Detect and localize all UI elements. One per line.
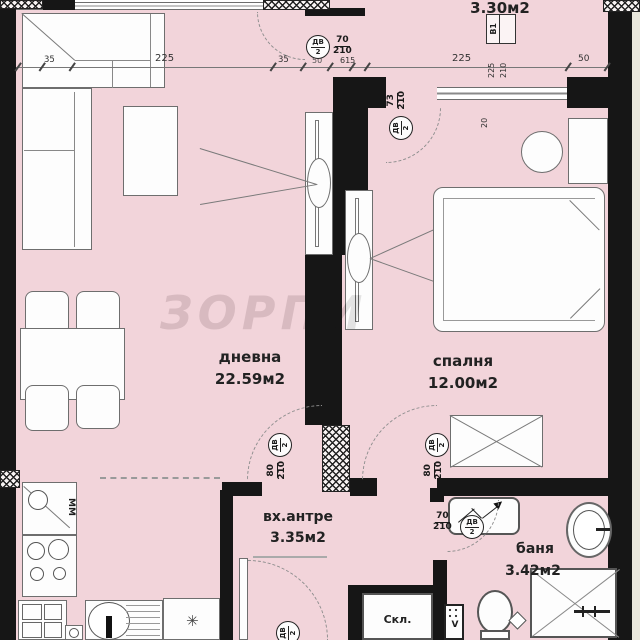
bedroom-window	[437, 87, 567, 100]
bedroom-radiator-lens	[347, 233, 371, 283]
door-size: 80 210	[267, 461, 288, 480]
wall-bed-bottom-a	[350, 478, 377, 496]
door-marker-num: 2	[316, 48, 321, 56]
door-marker-code: ДВ	[465, 519, 479, 528]
wall-mid-thin	[333, 190, 345, 255]
bath-name-label: баня	[495, 541, 575, 557]
door-size-height: 210	[278, 461, 288, 480]
door-size-height: 210	[433, 523, 452, 533]
dim-50b: 50	[578, 54, 589, 64]
door-marker: ДВ 2	[460, 515, 484, 539]
dim-35a: 35	[44, 55, 55, 65]
hatch-column	[322, 425, 350, 492]
door-marker-num: 2	[470, 528, 475, 536]
door-marker-num: 2	[438, 443, 446, 448]
hatch-top-mid	[263, 0, 330, 10]
shower-faucet-tick	[582, 606, 584, 617]
burner	[30, 567, 44, 581]
toilet-bowl	[477, 590, 513, 634]
living-name-label: дневна	[190, 349, 310, 366]
hall-line	[253, 556, 327, 558]
chair	[25, 385, 69, 431]
hall-name-label: вх.антре	[243, 509, 353, 525]
balcony-area-label: 3.30м2	[445, 0, 555, 17]
dim-615: 615	[340, 56, 355, 65]
sofa-horizontal	[22, 13, 165, 88]
cabinet-square	[44, 622, 62, 638]
window-marker-cell: В1	[487, 15, 500, 43]
bed-inner-line	[443, 198, 595, 199]
door-marker-num: 2	[402, 126, 410, 131]
hatch-bottom-left	[0, 470, 20, 488]
wall-right	[608, 12, 632, 640]
burner	[53, 567, 66, 580]
kitchen-mm-label: ММ	[60, 498, 76, 522]
door-marker-code: ДВ	[429, 438, 438, 452]
wall-mid-lower	[305, 255, 342, 425]
dim-35b: 35	[278, 55, 289, 65]
chair	[76, 385, 120, 429]
sofa-vertical	[22, 88, 92, 250]
door-marker-code: ДВ	[280, 626, 289, 640]
hatch-top-right	[603, 0, 640, 12]
wall-closet-left	[348, 585, 362, 640]
bedroom-area-label: 12.00м2	[408, 375, 518, 392]
watermark: ЗОРПИ	[160, 286, 470, 340]
closet-label: Скл.	[370, 614, 425, 627]
door-marker-num: 2	[289, 631, 297, 636]
sofa-armrest-line	[150, 14, 151, 87]
toilet-tank	[480, 630, 510, 640]
sofa-back-line	[74, 92, 75, 247]
door-marker: ДВ 2	[306, 35, 330, 59]
door-marker-code: ДВ	[272, 438, 281, 452]
small-unit-circle	[69, 628, 79, 638]
door-marker-num: 2	[281, 443, 289, 448]
nightstand	[568, 118, 608, 184]
bedside-round-table	[521, 131, 563, 173]
sink-tap	[106, 616, 112, 638]
sofa-division-line	[24, 150, 74, 151]
counter-star: ✳	[186, 612, 210, 636]
bath-area-label: 3.42м2	[488, 563, 578, 579]
cabinet-square	[22, 622, 42, 638]
dimension-line	[16, 67, 608, 68]
shower-faucet	[574, 610, 610, 613]
living-area-label: 22.59м2	[190, 371, 310, 388]
door-marker-code: ДВ	[393, 121, 402, 135]
shower-faucet-tick	[594, 606, 596, 617]
door-marker: ДВ 2	[389, 116, 413, 140]
door-size-height: 210	[333, 47, 352, 57]
door-size: 70 210	[433, 512, 452, 533]
fridge-circle	[28, 490, 48, 510]
sofa-seat-line	[75, 60, 151, 61]
dim-225a: 225	[155, 53, 174, 64]
floor-plan: ММ ✳ Скл. V	[0, 0, 640, 640]
door-marker: ДВ 2	[276, 621, 300, 640]
hatch-top-left	[0, 0, 43, 9]
wall-kitchen-hall	[220, 490, 233, 640]
window-marker-height: 210	[499, 48, 511, 78]
sink-drainer	[126, 605, 160, 638]
cabinet-square	[44, 604, 62, 620]
hall-area-label: 3.35м2	[243, 530, 353, 546]
cabinet-square	[22, 604, 42, 620]
door-size: 80 210	[424, 461, 445, 480]
door-size: 73 210	[387, 91, 408, 110]
wall-balcony-right	[567, 77, 608, 108]
wall-bath-jamb	[430, 488, 444, 502]
door-size: 70 210	[333, 36, 352, 57]
burner	[27, 542, 45, 560]
door-marker-code: ДВ	[311, 39, 325, 48]
entrance-door-leaf	[239, 558, 248, 640]
outside-strip	[632, 0, 640, 640]
dim-225b: 225	[452, 53, 471, 64]
window-marker-code: В1	[489, 23, 498, 35]
burner	[48, 539, 69, 560]
sofa-cushion-line	[112, 60, 113, 88]
bedroom-name-label: спалня	[408, 353, 518, 370]
wall-top-block	[43, 0, 75, 10]
tv-table	[123, 106, 178, 196]
door-marker: ДВ 2	[268, 433, 292, 457]
wall-left	[0, 9, 16, 640]
door-size-height: 210	[435, 461, 445, 480]
door-marker: ДВ 2	[425, 433, 449, 457]
wall-mid-upper	[333, 77, 368, 190]
dim-20: 20	[480, 108, 492, 128]
vent-dots	[447, 607, 461, 619]
window-marker-box: В1	[486, 14, 516, 44]
door-size-height: 210	[398, 91, 408, 110]
zone-boundary-line	[100, 477, 220, 479]
vent-label: V	[449, 620, 461, 634]
window-marker-width: 225	[487, 48, 499, 78]
bath-sink-tap	[596, 528, 610, 531]
wall-bed-bottom-b	[437, 478, 608, 496]
